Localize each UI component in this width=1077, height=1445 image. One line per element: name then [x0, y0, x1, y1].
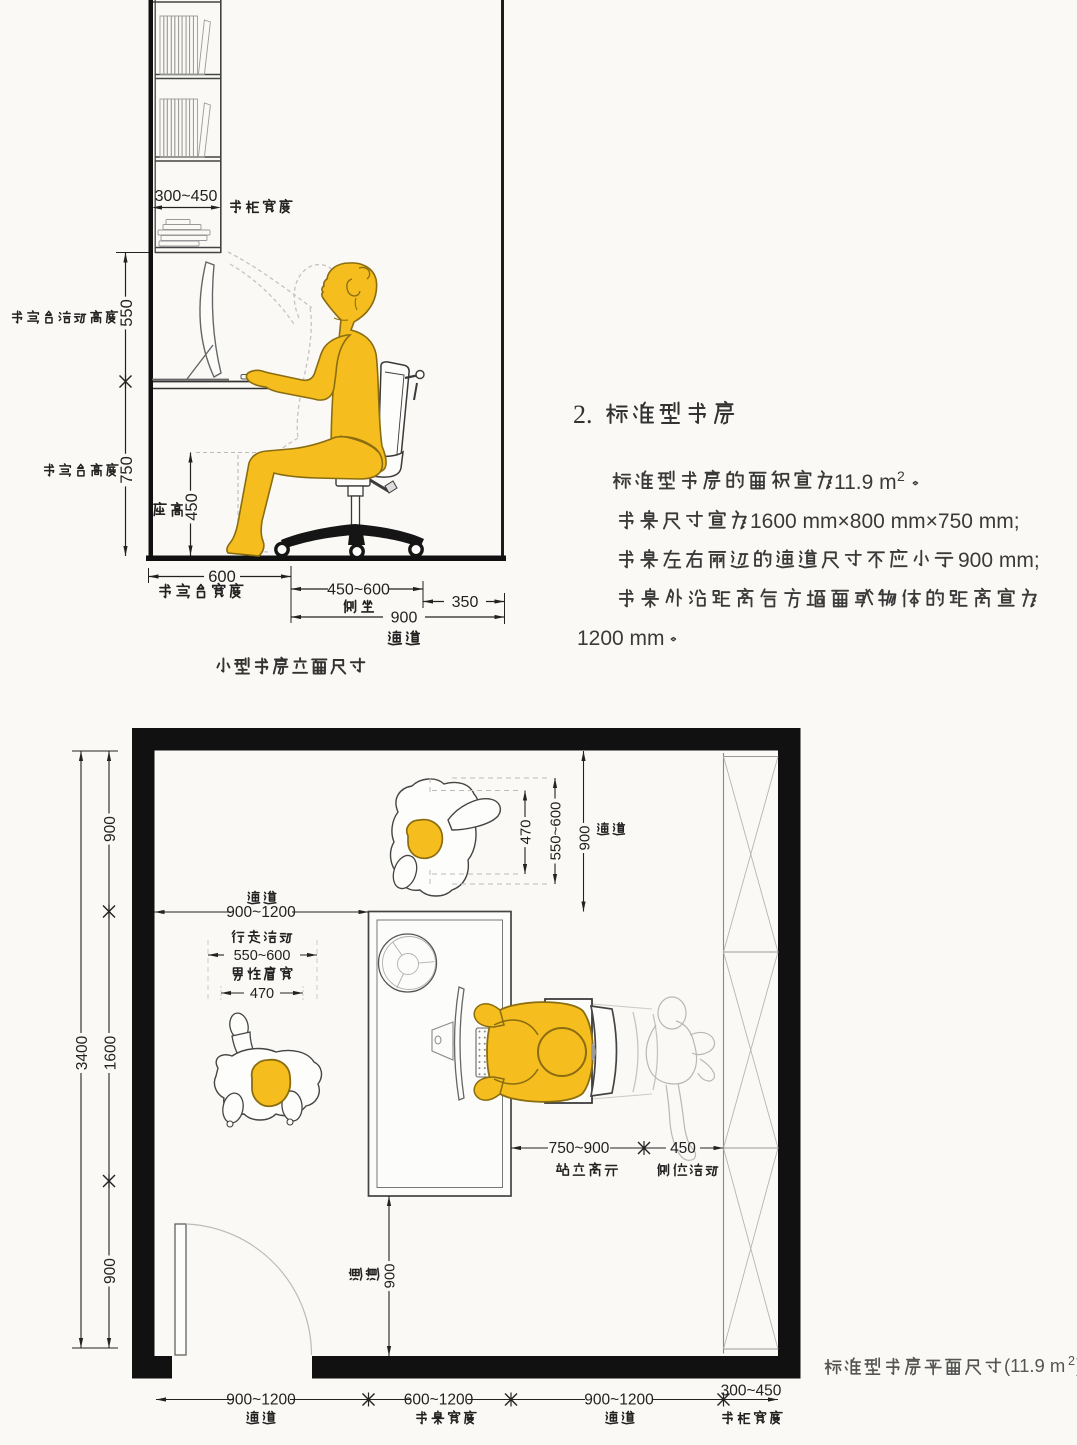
svg-text:1600 mm×800 mm×750 mm;: 1600 mm×800 mm×750 mm; [750, 510, 1020, 533]
svg-text:11.9 m: 11.9 m [834, 471, 897, 494]
svg-text:1600: 1600 [102, 1035, 119, 1070]
svg-text:(11.9 m: (11.9 m [1004, 1355, 1065, 1376]
svg-text:450: 450 [670, 1140, 696, 1157]
svg-text:900: 900 [102, 816, 119, 842]
svg-text:3400: 3400 [74, 1035, 91, 1070]
svg-text:550: 550 [118, 299, 136, 327]
svg-text:900~1200: 900~1200 [584, 1392, 654, 1409]
svg-text:750~900: 750~900 [549, 1140, 610, 1157]
svg-text:600: 600 [208, 568, 236, 586]
svg-text:350: 350 [452, 594, 479, 611]
svg-text:900~1200: 900~1200 [226, 904, 296, 921]
svg-text:900: 900 [391, 610, 418, 627]
svg-text:450: 450 [183, 493, 201, 521]
svg-text:1200 mm: 1200 mm [577, 627, 665, 650]
svg-text:2: 2 [1068, 1354, 1075, 1368]
svg-text:2.: 2. [573, 400, 593, 429]
svg-text:750: 750 [118, 456, 136, 484]
svg-text:600~1200: 600~1200 [404, 1392, 474, 1409]
svg-text:470: 470 [250, 986, 274, 1002]
svg-text:550~600: 550~600 [234, 948, 291, 964]
svg-text:470: 470 [517, 819, 534, 844]
svg-text:550~600: 550~600 [547, 802, 564, 861]
svg-text:300~450: 300~450 [155, 188, 218, 205]
svg-text:2: 2 [897, 468, 905, 484]
svg-text:900: 900 [102, 1258, 119, 1284]
svg-text:900: 900 [576, 825, 593, 850]
svg-text:900~1200: 900~1200 [226, 1392, 296, 1409]
svg-text:300~450: 300~450 [721, 1383, 782, 1400]
svg-text:900: 900 [381, 1263, 398, 1288]
svg-text:900 mm;: 900 mm; [958, 549, 1040, 572]
svg-text:450~600: 450~600 [327, 582, 390, 599]
